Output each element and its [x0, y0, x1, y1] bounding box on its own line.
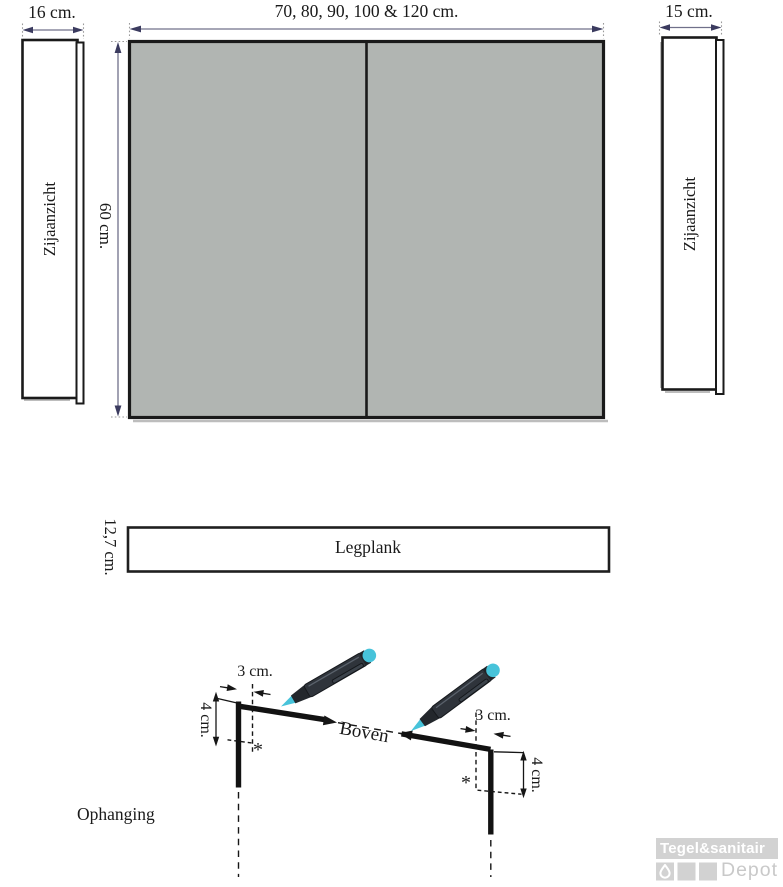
spec-sheet: 16 cm. 70, 80, 90, 100 & 120 cm. 15 cm. …	[0, 0, 783, 887]
technical-drawing	[0, 0, 783, 887]
right-side-door-edge	[716, 40, 724, 394]
right-height-label: 4 cm.	[526, 715, 546, 835]
right-side-view-label: Zijaanzicht	[680, 154, 700, 274]
marker-pen-left	[277, 646, 378, 713]
left-side-door-edge	[77, 43, 84, 404]
right-drill-mark: *	[461, 776, 471, 790]
logo-brand-text: Tegel&sanitair	[660, 840, 765, 858]
right-offset-label: 3 cm.	[466, 706, 520, 726]
left-side-view-label: Zijaanzicht	[40, 159, 60, 279]
front-height-label: 60 cm.	[95, 166, 115, 286]
left-height-label: 4 cm.	[195, 660, 215, 780]
shelf-label: Legplank	[127, 537, 609, 557]
right-side-depth-label: 15 cm.	[657, 1, 721, 21]
hanging-section-label: Ophanging	[77, 804, 155, 824]
logo-sub-text: Depot	[721, 860, 778, 880]
shelf-depth-label: 12,7 cm.	[100, 487, 120, 607]
left-side-depth-label: 16 cm.	[20, 2, 84, 22]
front-width-label: 70, 80, 90, 100 & 120 cm.	[128, 1, 605, 21]
front-view	[111, 23, 608, 421]
left-drill-mark: *	[253, 743, 263, 757]
left-offset-label: 3 cm.	[228, 662, 282, 682]
